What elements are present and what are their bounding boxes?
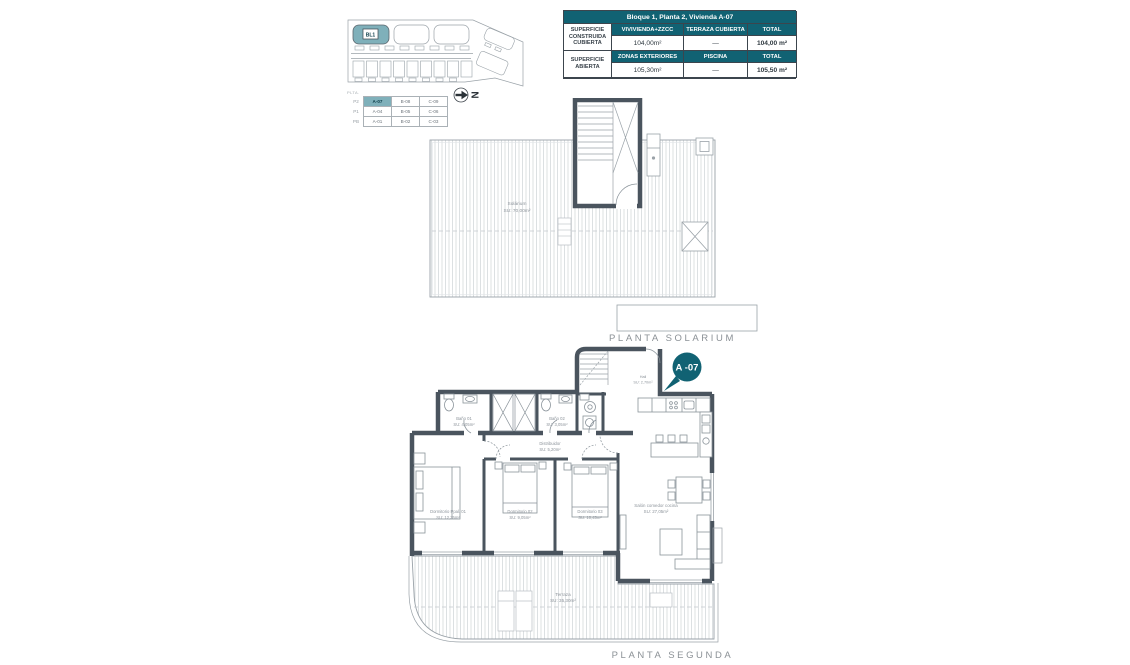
summary-value: 104,00m² — [612, 36, 684, 51]
key-table-caption: PLTA. — [347, 90, 360, 95]
dorm2-area: SU: 9,05m² — [509, 515, 531, 520]
solarium-plan: Solárium SU: 70,00m² — [420, 98, 765, 336]
key-unit: B-02 — [392, 117, 420, 127]
summary-value: 105,30m² — [612, 63, 684, 78]
summary-value: — — [684, 63, 748, 78]
segunda-caption: PLANTA SEGUNDA — [560, 650, 785, 661]
summary-header: ZONAS EXTERIORES — [612, 51, 684, 63]
outdoor-shower — [647, 134, 660, 176]
key-unit: A-01 — [364, 117, 392, 127]
unit-badge: A -07 — [664, 353, 702, 392]
unit-badge-label: A -07 — [676, 363, 699, 374]
dorm3-area: SU: 10,45m² — [578, 515, 602, 520]
summary-group2-label: SUPERFICIE ABIERTA — [564, 51, 612, 78]
summary-header: TERRAZA CUBIERTA — [684, 24, 748, 36]
segunda-plan: A -07 Hall SU: 2,70m² Baño 01 SU: 4,05m²… — [400, 345, 740, 647]
dorm1-area: SU: 12,35m² — [436, 515, 460, 520]
site-plan: BL1 — [345, 14, 527, 90]
area-summary-table: Bloque 1, Planta 2, Vivienda A-07 SUPERF… — [563, 10, 796, 79]
bano1-area: SU: 4,05m² — [453, 422, 475, 427]
distribuidor-label: Distribuidor — [539, 441, 561, 446]
salon-label: Salón comedor cocina — [634, 503, 678, 508]
solarium-area: SU: 70,00m² — [504, 208, 531, 214]
solarium-deck — [430, 140, 715, 297]
hall-area: SU: 2,70m² — [633, 381, 653, 385]
summary-header: PISCINA — [684, 51, 748, 63]
stair-door-opening — [616, 202, 637, 209]
ladder-symbol — [558, 218, 571, 245]
bano1-label: Baño 01 — [456, 416, 472, 421]
key-unit-highlight: A-07 — [364, 97, 392, 107]
summary-total: 105,50 m² — [748, 63, 797, 78]
bano2-label: Baño 02 — [549, 416, 565, 421]
key-level: PB — [349, 117, 364, 127]
site-buildings-top: BL1 — [353, 25, 469, 44]
solarium-label: Solárium — [508, 201, 527, 207]
summary-header: TOTAL — [748, 51, 797, 63]
solarium-caption: PLANTA SOLARIUM — [560, 333, 785, 344]
summary-total: 104,00 m² — [748, 36, 797, 51]
floorplan-sheet: BL1 PLTA. — [0, 0, 1130, 665]
key-unit: A-04 — [364, 107, 392, 117]
distribuidor-area: SU: 5,20m² — [539, 447, 561, 452]
dorm3-label: Dormitorio 03 — [577, 509, 603, 514]
summary-value: — — [684, 36, 748, 51]
summary-group1-label: SUPERFICIE CONSTRUIDA CUBIERTA — [564, 24, 612, 51]
key-level: P2 — [349, 97, 364, 107]
site-tabs — [355, 46, 469, 50]
terraza-area: SU: 35,30m² — [550, 598, 576, 603]
north-arrow-tail — [456, 94, 463, 96]
bano2-area: SU: 3,05m² — [546, 422, 568, 427]
summary-header: VIVIVIENDA+ZZCC — [612, 24, 684, 36]
key-level: P1 — [349, 107, 364, 117]
dorm1-label: Dormitorio Ppal. 01 — [430, 509, 467, 514]
key-unit: B-08 — [392, 97, 420, 107]
site-buildings-wing — [473, 27, 519, 76]
salon-area: SU: 27,05m² — [644, 509, 669, 514]
skylight-box — [682, 222, 708, 251]
corner-vent-box — [696, 138, 713, 155]
key-unit: B-05 — [392, 107, 420, 117]
summary-header: TOTAL — [748, 24, 797, 36]
summary-title: Bloque 1, Planta 2, Vivienda A-07 — [564, 11, 797, 24]
terraza-label: Terraza — [555, 592, 571, 597]
stair-core — [575, 100, 640, 209]
dorm2-label: Dormitorio 02 — [507, 509, 533, 514]
lower-roof-outline — [617, 305, 757, 331]
site-buildings-bottom — [353, 61, 472, 82]
exterior-ledge — [713, 528, 722, 563]
bl1-label: BL1 — [366, 33, 376, 39]
hall-label: Hall — [640, 375, 647, 379]
